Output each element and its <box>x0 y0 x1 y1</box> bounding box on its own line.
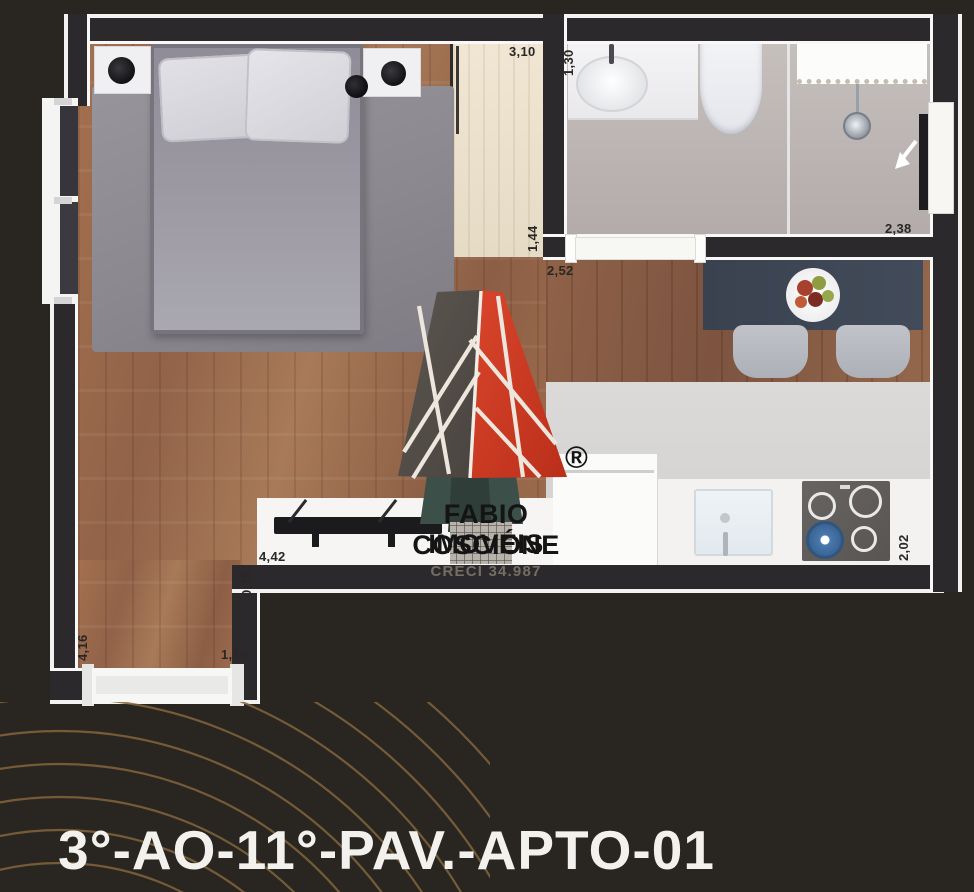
kitchen-sink <box>694 489 773 556</box>
pillow-right <box>244 48 351 144</box>
entry-door-panel <box>928 102 954 214</box>
wall-left-upper <box>64 14 90 106</box>
bathroom-sink <box>576 56 648 112</box>
window-left-mullion-bottom <box>54 297 72 304</box>
fruit-apple <box>822 290 834 302</box>
measurement-living-width: 4,42 <box>259 549 286 564</box>
measurement-living-length: 4,16 <box>75 634 90 661</box>
window-bottom-frame <box>92 668 232 704</box>
sink-faucet-icon <box>609 44 614 64</box>
measurement-vanity-width: 1,30 <box>561 49 576 76</box>
cooktop-controls <box>840 485 850 489</box>
window-left-mullion-top <box>54 98 72 105</box>
shower-glass-partition <box>787 42 790 238</box>
real-estate-floor-plan-flyer: 3,10 1,30 1,44 2,52 2,38 2,02 4,42 0,70 … <box>0 0 974 892</box>
measurement-step-depth: 0,70 <box>239 570 254 597</box>
living-extension-wood-floor <box>78 560 240 672</box>
measurement-closet-width: 3,10 <box>509 44 536 59</box>
bed-corner-speaker-icon <box>345 75 368 98</box>
window-bottom-jamb-right <box>230 664 244 706</box>
burner-small-left <box>808 492 836 520</box>
fruit-orange <box>795 296 807 308</box>
window-left-mullion-mid <box>54 197 72 204</box>
fruit-dark <box>808 292 823 307</box>
window-left-frame <box>42 98 78 304</box>
blue-pot-icon <box>806 521 844 559</box>
brand-name-line2: IMOVÉIS <box>374 529 598 560</box>
entry-arrow-icon <box>892 138 922 176</box>
bath-sliding-door <box>575 237 696 260</box>
burner-small-right <box>851 526 877 552</box>
shower-head-icon <box>843 112 871 140</box>
wall-left-lower <box>50 298 78 672</box>
brand-license: CRECI 34.987 <box>374 563 598 580</box>
shower-niche-shelf <box>797 42 927 84</box>
window-bottom-glass <box>96 676 228 694</box>
wall-right <box>930 14 962 592</box>
measurement-shower-width: 2,38 <box>885 221 912 236</box>
tv-leg-left <box>312 534 319 547</box>
measurement-bath-wall: 2,52 <box>547 263 574 278</box>
wall-top <box>64 14 962 44</box>
window-left-panel-1 <box>60 106 78 196</box>
bedside-lamp-left-icon <box>108 57 135 84</box>
bedside-lamp-right-icon <box>381 61 406 86</box>
closet-rail <box>456 46 459 134</box>
kitchen-faucet-icon <box>723 532 728 556</box>
kitchen-faucet-base <box>720 513 730 523</box>
measurement-kitchen-length: 2,02 <box>896 534 911 561</box>
unit-title: 3°-AO-11°-PAV.-APTO-01 <box>58 818 715 882</box>
window-left-panel-2 <box>60 202 78 294</box>
dining-chair-right <box>836 325 910 378</box>
fruit-green <box>812 276 826 290</box>
burner-large-right <box>849 485 882 518</box>
measurement-window-width: 1,20 <box>221 647 248 662</box>
registered-trademark-icon: ® <box>565 440 588 476</box>
measurement-closet-depth: 1,44 <box>525 225 540 252</box>
dining-chair-left <box>733 325 808 378</box>
